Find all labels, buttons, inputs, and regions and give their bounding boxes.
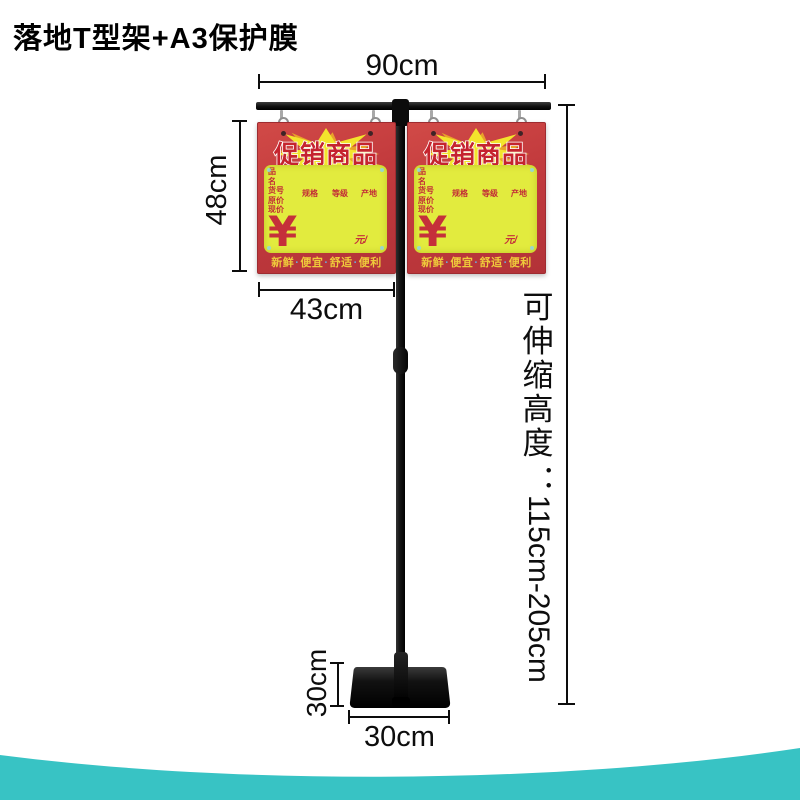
field-label: 名 — [418, 177, 434, 187]
currency-symbol: ¥ — [418, 211, 447, 253]
page-title: 落地T型架+A3保护膜 — [13, 15, 299, 57]
field-label: 名 — [268, 177, 284, 187]
pole-base-sleeve — [394, 652, 408, 702]
spec-label: 规格 — [302, 188, 318, 199]
product-diagram: 落地T型架+A3保护膜 90cm 促销商品 品 名 货号 原价 现价 — [0, 0, 800, 800]
promo-sign-right: 促销商品 品 名 货号 原价 现价 规格 等级 产地 ¥ 元/ 新鲜·便宜·舒适… — [407, 122, 546, 274]
slogan-word: 便宜 — [450, 257, 473, 269]
spec-label: 等级 — [482, 188, 498, 199]
stand-pole — [396, 110, 405, 668]
rivet-dot — [417, 168, 421, 172]
field-label: 货号 — [418, 186, 434, 196]
pole-base-flare — [392, 697, 410, 707]
spec-label: 等级 — [332, 188, 348, 199]
adjustable-height-range: ：115cm-205cm — [516, 465, 560, 683]
slogan-word: 便利 — [509, 257, 532, 269]
dimension-cap — [558, 104, 575, 106]
dimension-line-sign-height — [239, 121, 241, 272]
dimension-cap — [232, 120, 247, 122]
rivet-dot — [530, 168, 534, 172]
unit-label: 元/ — [354, 231, 367, 246]
sign-slogan: 新鲜·便宜·舒适·便利 — [408, 254, 545, 270]
dimension-cap — [232, 270, 247, 272]
dimension-line-crossbar — [259, 81, 545, 83]
adjustable-height-text: 可伸缩高度 — [523, 291, 554, 461]
field-label: 原价 — [418, 196, 434, 206]
field-label: 原价 — [268, 196, 284, 206]
slogan-word: 新鲜 — [271, 257, 294, 269]
dimension-line-base-width — [349, 716, 450, 718]
spec-label: 产地 — [361, 188, 377, 199]
slogan-word: 新鲜 — [421, 257, 444, 269]
price-panel: 品 名 货号 原价 现价 规格 等级 产地 ¥ 元/ — [414, 165, 537, 253]
dimension-line-sign-width — [259, 289, 394, 291]
slogan-word: 舒适 — [330, 257, 353, 269]
dimension-cap — [330, 662, 344, 664]
rivet-dot — [267, 168, 271, 172]
slogan-word: 便宜 — [300, 257, 323, 269]
dimension-cap — [330, 705, 344, 707]
dim-label-base-depth: 30cm — [301, 638, 329, 728]
slogan-word: 便利 — [359, 257, 382, 269]
dim-label-adjustable-height: 可伸缩高度 ：115cm-205cm — [512, 291, 564, 683]
dimension-cap — [558, 703, 575, 705]
dim-label-sign-height: 48cm — [201, 145, 231, 235]
promo-sign-left: 促销商品 品 名 货号 原价 现价 规格 等级 产地 ¥ 元/ 新鲜·便宜·舒适… — [257, 122, 396, 274]
spec-label: 规格 — [452, 188, 468, 199]
unit-label: 元/ — [504, 231, 517, 246]
field-label: 货号 — [268, 186, 284, 196]
price-panel: 品 名 货号 原价 现价 规格 等级 产地 ¥ 元/ — [264, 165, 387, 253]
rivet-dot — [380, 168, 384, 172]
dimension-line-height — [566, 105, 568, 705]
rivet-dot — [417, 246, 421, 250]
slogan-word: 舒适 — [480, 257, 503, 269]
dimension-cap — [544, 74, 546, 89]
dimension-cap — [258, 74, 260, 89]
rivet-dot — [380, 246, 384, 250]
dim-label-sign-width: 43cm — [259, 293, 394, 327]
spec-label: 产地 — [511, 188, 527, 199]
pole-coupling — [393, 347, 408, 374]
bottom-wave — [0, 742, 800, 800]
dim-label-crossbar-width: 90cm — [259, 49, 545, 83]
dimension-line-base-depth — [337, 663, 339, 707]
currency-symbol: ¥ — [268, 211, 297, 253]
rivet-dot — [267, 246, 271, 250]
rivet-dot — [530, 246, 534, 250]
sign-slogan: 新鲜·便宜·舒适·便利 — [258, 254, 395, 270]
